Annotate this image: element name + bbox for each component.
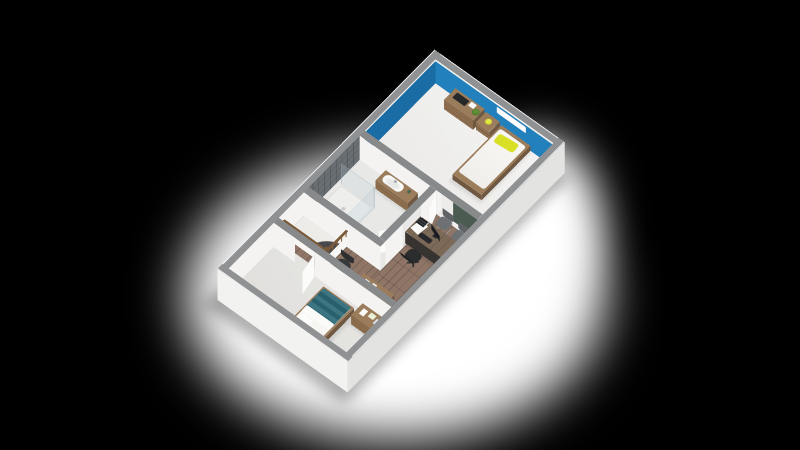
render-canvas [0, 0, 800, 450]
